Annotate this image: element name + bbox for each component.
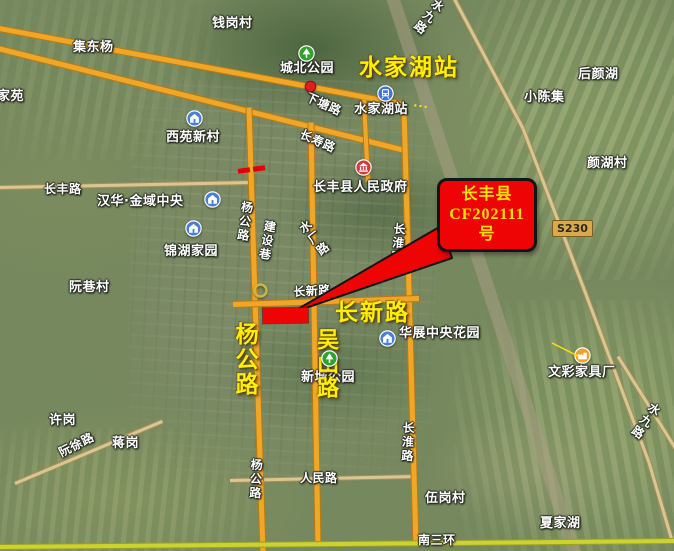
- label-ruanxiangcun: 阮巷村: [69, 281, 110, 295]
- tree-icon: [321, 350, 338, 367]
- house-icon: [379, 330, 396, 347]
- label-jidongyang: 集东杨: [73, 41, 114, 55]
- house-icon: [185, 220, 202, 237]
- farmland-texture-nw: [0, 0, 220, 160]
- satellite-map[interactable]: 钱岗村集东杨家苑城北公园西苑新村水家湖站小陈集后颜湖颜湖村长丰县人民政府长丰路汉…: [0, 0, 674, 551]
- label-nansanhuan: 南三环: [418, 534, 456, 547]
- red-tick: [238, 167, 251, 174]
- label-ruanxu-road: 阮徐路: [57, 431, 96, 459]
- s230-road-shield: S230: [552, 220, 593, 237]
- icons-layer: [0, 0, 674, 551]
- road-segment: [582, 285, 651, 462]
- callout-county-line: 长丰县: [461, 185, 512, 205]
- road-segment: [230, 475, 417, 482]
- label-qiangangcun: 钱岗村: [212, 17, 253, 31]
- label-yanggong-road-north: 杨公路: [235, 200, 253, 243]
- factory-icon: [574, 347, 591, 364]
- road-segment: [451, 0, 525, 129]
- road-segment: [617, 355, 674, 453]
- label-ellipsis-marks: ···: [412, 100, 429, 114]
- label-yanhucun: 颜湖村: [587, 157, 628, 171]
- red-dot: [304, 80, 317, 93]
- highlight-yanggong-road: 杨公路: [232, 322, 256, 397]
- road-segment: [0, 539, 674, 549]
- house-icon: [204, 191, 221, 208]
- roads-layer: [0, 0, 674, 551]
- label-changhuai-road-south: 长淮路: [400, 421, 415, 464]
- road-segment: [233, 296, 419, 307]
- label-chengbei-park: 城北公园: [280, 62, 334, 76]
- label-xiaochenji: 小陈集: [524, 91, 565, 105]
- label-jinhu-jiayuan: 锦湖家园: [164, 245, 218, 259]
- road-segment: [14, 420, 162, 485]
- label-changfeng-government: 长丰县人民政府: [313, 181, 408, 195]
- junction-ring: [252, 282, 269, 299]
- label-shuijiu-road-south: 水九路: [628, 400, 662, 442]
- highlight-wushan-road: 吴山路: [314, 328, 337, 400]
- urban-texture: [130, 80, 435, 480]
- label-changfeng-road: 长丰路: [44, 183, 82, 196]
- red-tick: [253, 165, 266, 172]
- satellite-texture: [0, 0, 674, 551]
- highlight-changxin-road: 长新路: [335, 301, 410, 325]
- label-jiayuan: 家苑: [0, 90, 24, 104]
- highlight-shuijiahu-station: 水家湖站: [359, 56, 459, 80]
- label-houyanhu: 后颜湖: [578, 68, 619, 82]
- label-xiatang-road: 下塘路: [304, 91, 343, 118]
- road-segment: [0, 45, 406, 153]
- callout-suffix-line: 号: [478, 225, 495, 245]
- label-xiajiahu: 夏家湖: [540, 517, 581, 531]
- label-shuichang-road: 水厂路: [296, 218, 332, 259]
- label-jianggang: 蒋岗: [112, 437, 139, 451]
- farmland-texture-se: [455, 300, 674, 551]
- highlighted-parcel: [263, 308, 308, 324]
- callout-code-line: CF202111: [449, 205, 525, 225]
- label-changxin-road: 长新路: [293, 284, 331, 299]
- road-segment: [362, 100, 370, 182]
- road-segment: [309, 122, 321, 546]
- labels-layer: 钱岗村集东杨家苑城北公园西苑新村水家湖站小陈集后颜湖颜湖村长丰县人民政府长丰路汉…: [0, 0, 674, 551]
- label-yanggong-road-south: 杨公路: [248, 458, 263, 501]
- label-hanhua-jinyu: 汉华·金域中央: [97, 195, 183, 209]
- road-segment: [0, 25, 404, 107]
- label-wencai-factory: 文彩家具厂: [548, 366, 616, 380]
- railway-corridor: [385, 0, 582, 551]
- factory-leader-line: [552, 343, 578, 356]
- label-xugang: 许岗: [49, 414, 76, 428]
- label-shuijiahu-station: 水家湖站: [354, 103, 408, 117]
- house-icon: [186, 110, 203, 127]
- government-icon: [355, 159, 372, 176]
- tree-icon: [298, 45, 315, 62]
- label-renmin-road: 人民路: [300, 472, 338, 485]
- road-segment: [402, 107, 419, 546]
- label-huazhan-garden: 华展中央花园: [399, 327, 480, 341]
- annotation-overlay: [0, 0, 674, 551]
- callout-arrow: [291, 226, 452, 313]
- label-jianshe-lane: 建设巷: [257, 219, 277, 263]
- label-shuijiu-road-north: 水九路: [410, 0, 446, 37]
- label-changhuai-road-north: 长淮路: [389, 222, 405, 265]
- train-icon: [377, 85, 394, 102]
- label-xiyuan-xincun: 西苑新村: [166, 131, 220, 145]
- road-segment: [648, 462, 674, 541]
- parcel-callout[interactable]: 长丰县 CF202111 号: [437, 178, 537, 252]
- label-changshou-road: 长寿路: [298, 128, 337, 155]
- road-segment: [247, 107, 266, 551]
- label-wugangcun: 伍岗村: [425, 492, 466, 506]
- farmland-texture-sw: [0, 428, 250, 551]
- label-xincheng-park: 新城公园: [301, 371, 355, 385]
- road-segment: [0, 181, 252, 189]
